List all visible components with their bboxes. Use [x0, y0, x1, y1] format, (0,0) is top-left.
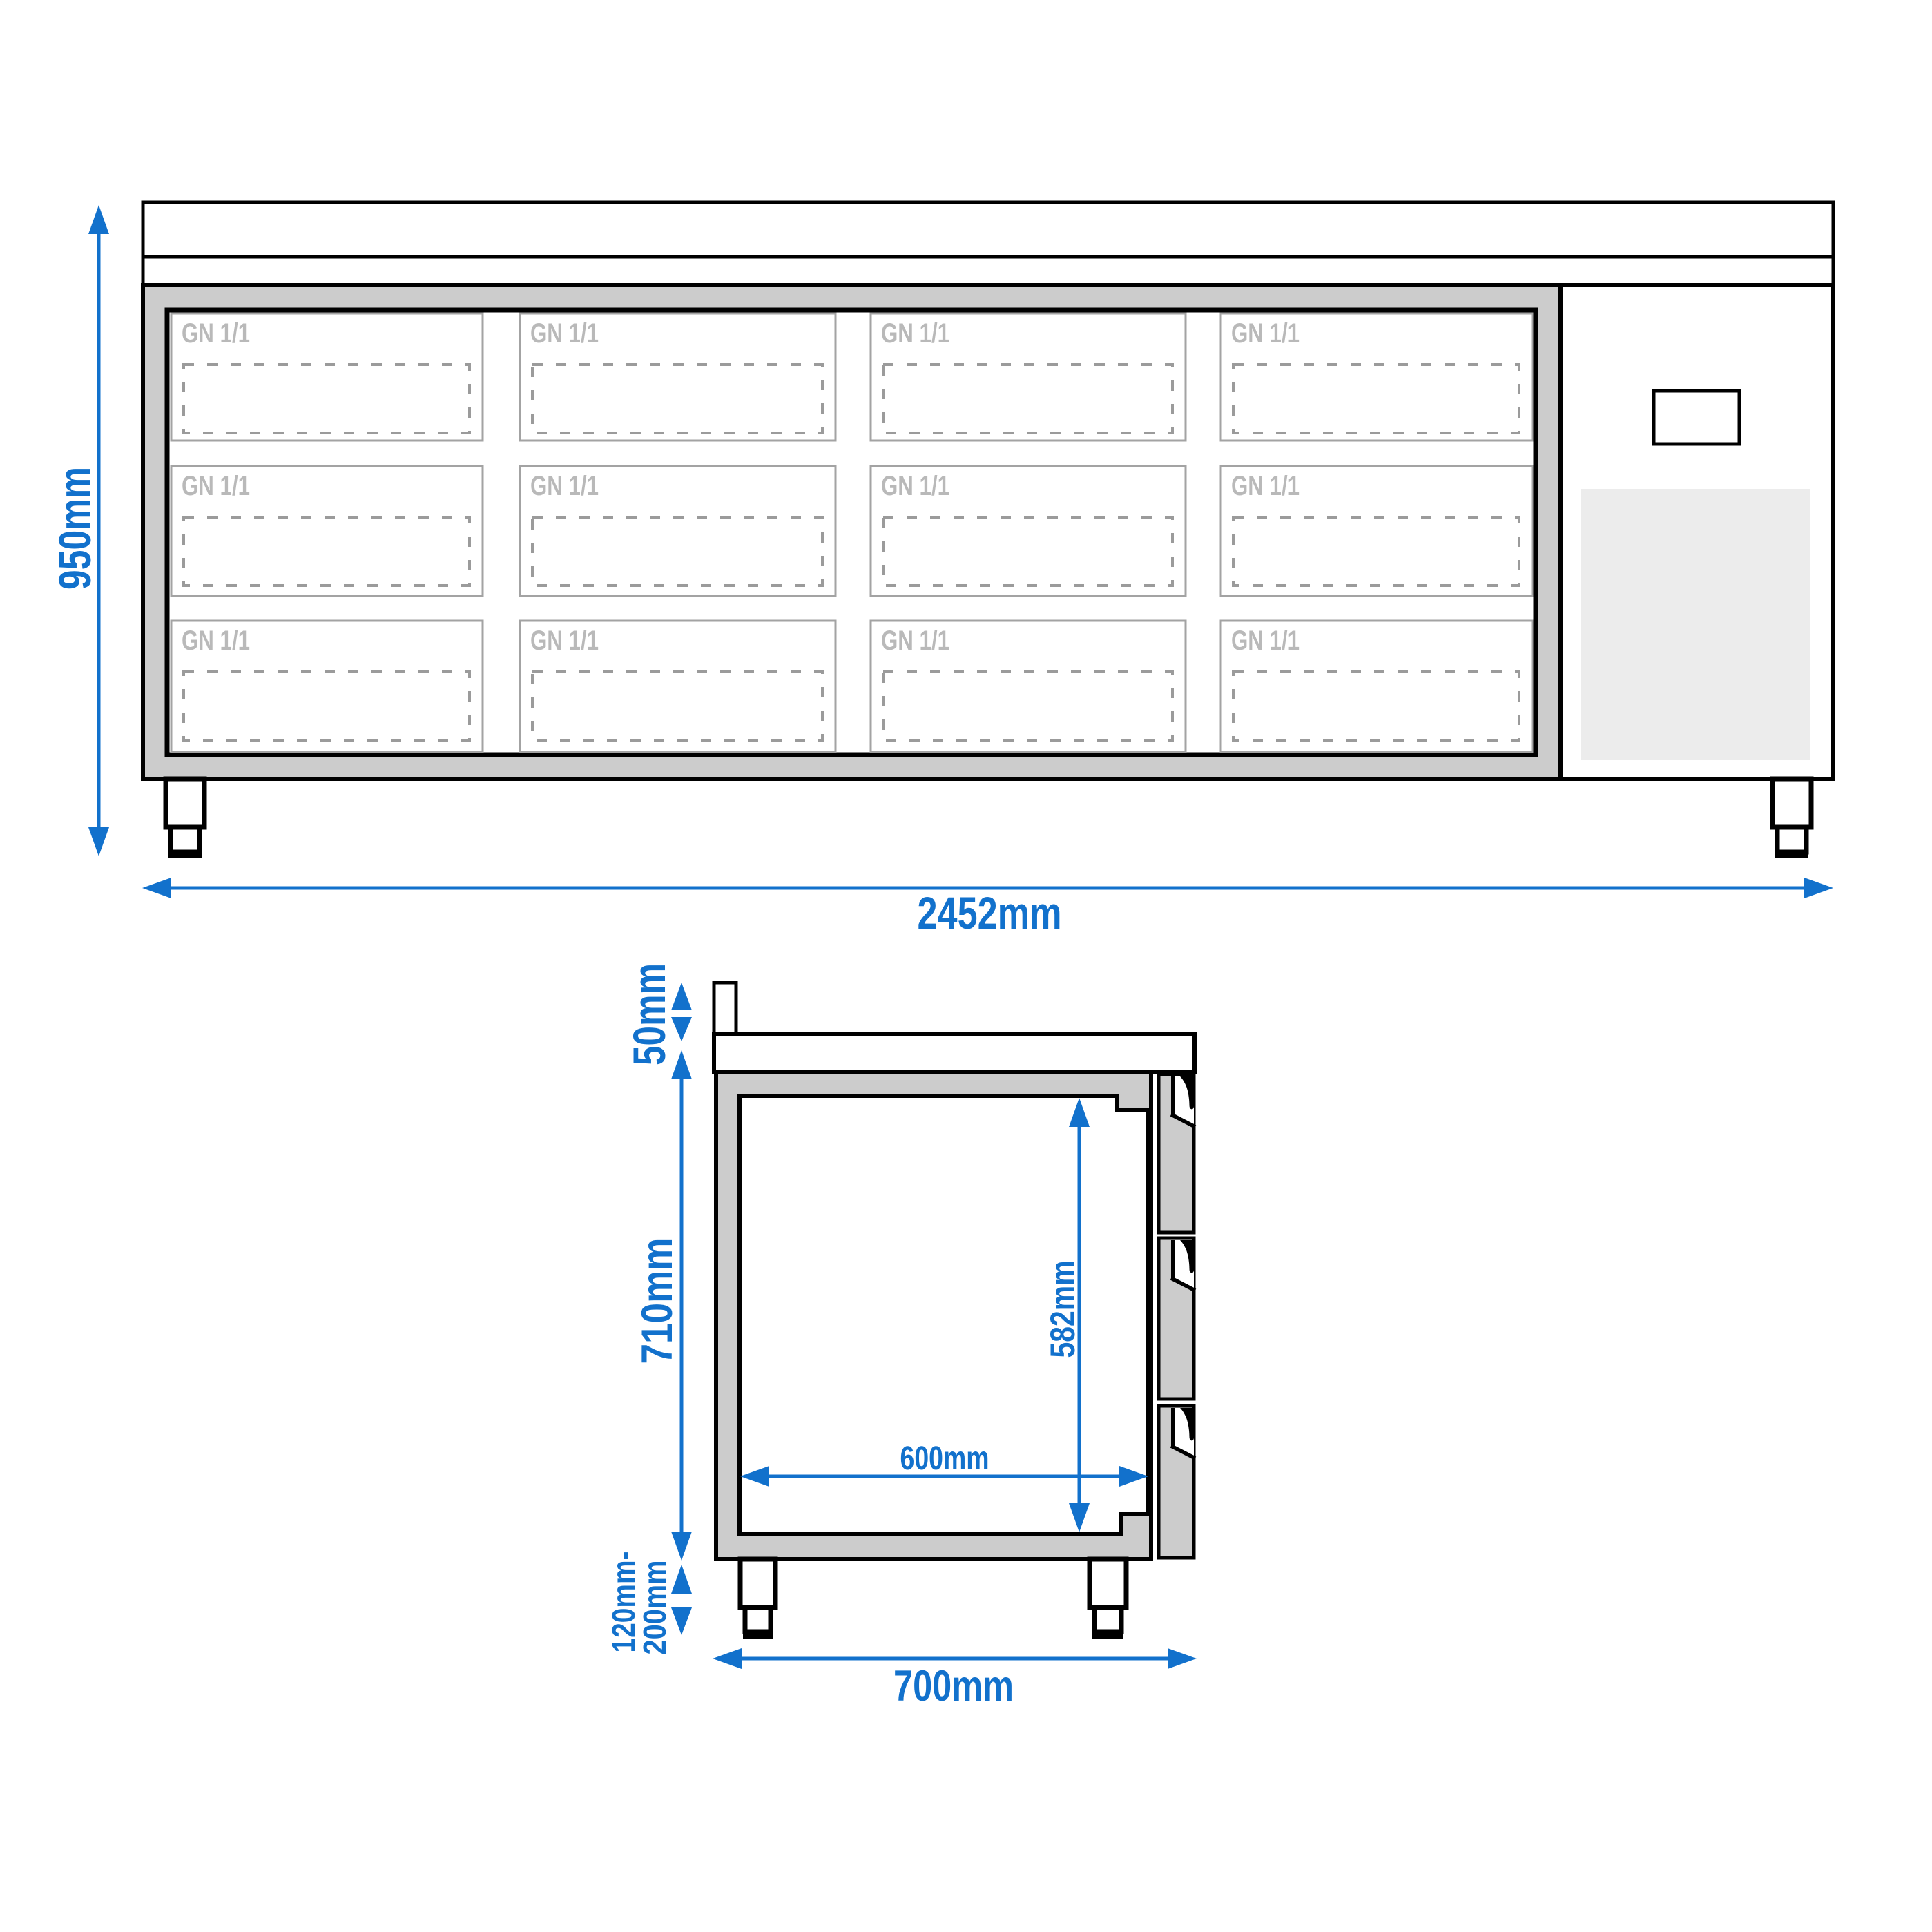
- svg-text:GN 1/1: GN 1/1: [182, 318, 250, 349]
- svg-text:950mm: 950mm: [49, 467, 100, 590]
- svg-text:GN 1/1: GN 1/1: [881, 471, 949, 501]
- svg-text:600mm: 600mm: [900, 1440, 989, 1477]
- svg-text:GN 1/1: GN 1/1: [1231, 318, 1300, 349]
- svg-text:GN 1/1: GN 1/1: [530, 318, 599, 349]
- svg-text:GN 1/1: GN 1/1: [182, 471, 250, 501]
- svg-text:700mm: 700mm: [893, 1662, 1014, 1710]
- svg-text:GN 1/1: GN 1/1: [1231, 626, 1300, 656]
- svg-text:GN 1/1: GN 1/1: [530, 471, 599, 501]
- svg-text:710mm: 710mm: [633, 1238, 682, 1364]
- svg-text:GN 1/1: GN 1/1: [182, 626, 250, 656]
- svg-text:GN 1/1: GN 1/1: [881, 626, 949, 656]
- svg-text:50mm: 50mm: [624, 963, 675, 1065]
- svg-text:GN 1/1: GN 1/1: [530, 626, 599, 656]
- svg-text:GN 1/1: GN 1/1: [1231, 471, 1300, 501]
- svg-text:582mm: 582mm: [1043, 1261, 1082, 1358]
- svg-text:GN 1/1: GN 1/1: [881, 318, 949, 349]
- svg-text:200mm: 200mm: [637, 1561, 673, 1655]
- svg-text:2452mm: 2452mm: [918, 887, 1062, 938]
